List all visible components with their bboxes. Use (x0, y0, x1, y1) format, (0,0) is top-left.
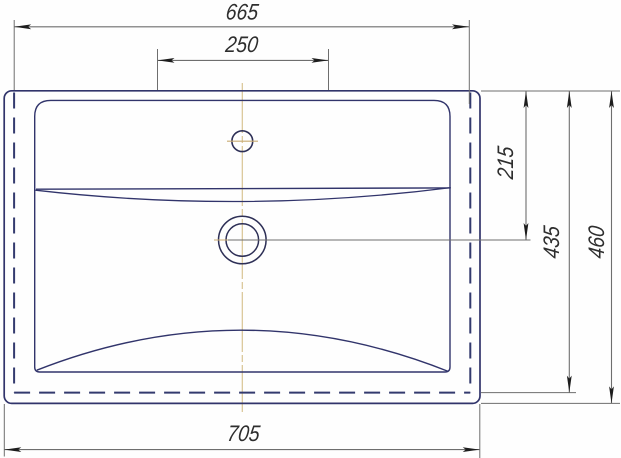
svg-text:435: 435 (540, 224, 565, 260)
svg-text:665: 665 (225, 0, 261, 25)
svg-text:250: 250 (223, 33, 259, 58)
svg-text:215: 215 (494, 145, 519, 181)
svg-text:705: 705 (226, 422, 262, 447)
svg-text:460: 460 (585, 224, 610, 260)
